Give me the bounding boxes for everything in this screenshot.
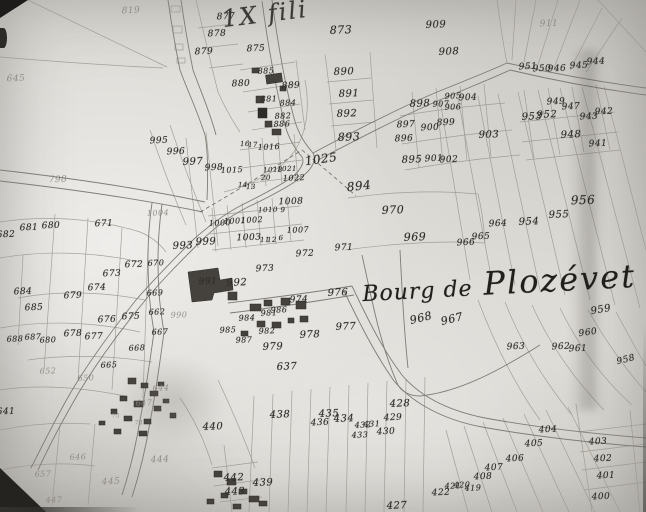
parcel-number: 941 bbox=[588, 139, 607, 150]
parcel-number: 1003 bbox=[236, 233, 261, 244]
parcel-number: 897 bbox=[396, 120, 415, 131]
parcel-number: 991 bbox=[198, 277, 217, 288]
parcel-number: 909 bbox=[426, 19, 447, 31]
parcel-number: 672 bbox=[124, 260, 143, 271]
parcel-number: 878 bbox=[207, 29, 226, 40]
parcel-number: 993 bbox=[173, 240, 194, 252]
parcel-number: 902 bbox=[439, 155, 458, 166]
parcel-number: 681 bbox=[19, 223, 38, 234]
parcel-number: 442 bbox=[224, 472, 245, 484]
parcel-number: 684 bbox=[13, 287, 32, 298]
parcel-number: 688 bbox=[6, 334, 23, 344]
parcel-number: 900 bbox=[420, 123, 439, 134]
parcel-number: 680 bbox=[41, 221, 60, 232]
parcel-number: 74 bbox=[135, 419, 144, 426]
parcel-number: 401 bbox=[596, 471, 615, 482]
parcel-number: 447 bbox=[45, 495, 62, 505]
parcel-number: 877 bbox=[216, 12, 235, 23]
parcel-number: 1010 bbox=[258, 206, 278, 215]
parcel-number: 404 bbox=[538, 425, 557, 436]
parcel-number: 873 bbox=[330, 23, 353, 37]
parcel-number: 440 bbox=[203, 421, 224, 433]
parcel-number: 999 bbox=[196, 236, 217, 248]
parcel-number: 1016 bbox=[258, 142, 281, 152]
parcel-number: 987 bbox=[235, 335, 252, 345]
parcel-number: 652 bbox=[39, 366, 56, 376]
parcel-number: 438 bbox=[270, 409, 291, 421]
scan-edge-mark-left bbox=[0, 28, 7, 48]
parcel-number: 646 bbox=[69, 452, 86, 462]
parcel-number: 995 bbox=[149, 136, 168, 147]
parcel-number: 1015 bbox=[221, 165, 244, 175]
parcel-number: 954 bbox=[519, 216, 540, 228]
parcel-number: 685 bbox=[24, 303, 43, 314]
cadastral-map: 1X fili Bourg de Plozévet 81987787387887… bbox=[0, 0, 646, 512]
parcel-number: 903 bbox=[479, 129, 500, 141]
parcel-number: 675 bbox=[121, 312, 140, 323]
parcel-number: 641 bbox=[0, 407, 16, 418]
parcel-number: 945 bbox=[569, 61, 588, 72]
parcel-number: 884 bbox=[279, 98, 296, 108]
parcel-number: 645 bbox=[6, 74, 25, 85]
parcel-number: 443 bbox=[225, 486, 246, 498]
parcel-number: 17 bbox=[248, 141, 258, 149]
parcel-number: 1022 bbox=[283, 173, 306, 183]
parcel-number: 9 bbox=[280, 206, 285, 214]
parcel-number: 427 bbox=[387, 500, 408, 512]
parcel-number: 896 bbox=[394, 134, 413, 145]
parcel-number: 886 bbox=[273, 119, 290, 129]
parcel-number: 895 bbox=[402, 154, 423, 166]
parcel-number: 444 bbox=[150, 455, 169, 466]
parcel-number: 650 bbox=[77, 373, 94, 383]
parcel-number: 680 bbox=[39, 335, 56, 345]
parcel-number: 1007 bbox=[287, 225, 310, 235]
parcel-number: 961 bbox=[568, 344, 587, 355]
parcel-number: 433 bbox=[351, 430, 368, 440]
place-name-main: Plozévet bbox=[482, 257, 636, 303]
parcel-number: 893 bbox=[338, 130, 361, 144]
parcel-number: 406 bbox=[505, 454, 524, 465]
parcel-number: 657 bbox=[34, 469, 51, 479]
parcel-number: 979 bbox=[263, 341, 284, 353]
parcel-number: 20 bbox=[261, 174, 271, 182]
parcel-number: 978 bbox=[300, 329, 321, 341]
parcel-number: 956 bbox=[571, 193, 596, 208]
parcel-number: 894 bbox=[346, 178, 372, 194]
parcel-number: 997 bbox=[183, 156, 204, 168]
parcel-number: 670 bbox=[147, 258, 164, 268]
parcel-number: 881 bbox=[260, 94, 277, 104]
parcel-number: 676 bbox=[97, 315, 116, 326]
parcel-number: 662 bbox=[148, 307, 165, 317]
parcel-number: 819 bbox=[121, 6, 140, 17]
parcel-number: 971 bbox=[334, 243, 353, 254]
parcel-number: 889 bbox=[281, 81, 300, 92]
parcel-number: 428 bbox=[390, 398, 411, 410]
parcel-number: 678 bbox=[63, 329, 82, 340]
parcel-number: 405 bbox=[524, 439, 543, 450]
parcel-number: 892 bbox=[337, 108, 358, 120]
parcel-number: 1021 bbox=[277, 165, 297, 174]
parcel-number: 942 bbox=[594, 107, 613, 118]
parcel-number: 674 bbox=[87, 283, 106, 294]
parcel-number: 972 bbox=[295, 249, 314, 260]
parcel-number: 13 bbox=[246, 183, 256, 191]
parcel-number: 891 bbox=[339, 88, 360, 100]
parcel-number: 673 bbox=[102, 269, 121, 280]
parcel-number: 885 bbox=[257, 66, 274, 76]
parcel-number: 439 bbox=[253, 477, 274, 489]
parcel-number: 682 bbox=[0, 230, 16, 241]
parcel-number: 875 bbox=[246, 44, 265, 55]
place-name-prefix: Bourg de bbox=[362, 276, 473, 307]
parcel-number: 12 bbox=[267, 236, 277, 244]
parcel-number: 430 bbox=[376, 427, 395, 438]
parcel-number: 952 bbox=[537, 109, 558, 121]
parcel-number: 402 bbox=[593, 454, 612, 465]
parcel-number: 955 bbox=[549, 209, 570, 221]
parcel-number: 984 bbox=[238, 313, 255, 323]
parcel-number: 667 bbox=[151, 327, 168, 337]
parcel-number: 996 bbox=[166, 147, 185, 158]
parcel-number: 407 bbox=[484, 463, 503, 474]
parcel-number: 669 bbox=[146, 288, 163, 298]
parcel-number: 908 bbox=[439, 46, 460, 58]
parcel-number: 911 bbox=[539, 19, 558, 30]
parcel-number: 677 bbox=[84, 332, 103, 343]
parcel-number: 798 bbox=[48, 175, 67, 186]
parcel-number: 986 bbox=[270, 305, 287, 315]
parcel-number: 964 bbox=[488, 219, 507, 230]
parcel-number: 976 bbox=[328, 287, 349, 299]
parcel-number: 668 bbox=[128, 343, 145, 353]
parcel-number: 644 bbox=[152, 383, 169, 393]
parcel-number: 879 bbox=[194, 47, 213, 58]
parcel-number: 679 bbox=[63, 291, 82, 302]
scan-edge-shadow-bottom bbox=[0, 507, 140, 512]
parcel-number: 647 bbox=[135, 398, 152, 408]
parcel-number: 408 bbox=[473, 472, 492, 483]
parcel-number: 890 bbox=[334, 66, 355, 78]
parcel-number: 429 bbox=[383, 413, 402, 424]
parcel-number: 75 bbox=[112, 412, 121, 419]
parcel-number: 880 bbox=[231, 79, 250, 90]
parcel-number: 948 bbox=[561, 129, 582, 141]
parcel-number: 1004 bbox=[147, 208, 170, 218]
parcel-number: 992 bbox=[227, 277, 248, 289]
parcel-number: 947 bbox=[561, 102, 580, 113]
parcel-number: 990 bbox=[170, 310, 187, 320]
parcel-number: 1002 bbox=[241, 215, 264, 225]
parcel-number: 419 bbox=[464, 483, 481, 493]
parcel-number: 965 bbox=[471, 232, 490, 243]
parcel-number: 963 bbox=[506, 342, 525, 353]
parcel-number: 977 bbox=[336, 321, 357, 333]
parcel-number: 974 bbox=[289, 295, 308, 306]
parcel-number: 637 bbox=[277, 361, 298, 373]
map-line-network bbox=[0, 0, 646, 512]
parcel-number: 973 bbox=[255, 264, 274, 275]
parcel-number: 445 bbox=[101, 477, 120, 488]
parcel-number: 671 bbox=[94, 219, 113, 230]
parcel-number: 403 bbox=[588, 437, 607, 448]
parcel-number: 434 bbox=[334, 413, 355, 425]
parcel-number: 665 bbox=[100, 360, 117, 370]
parcel-number: 970 bbox=[382, 203, 405, 217]
parcel-number: 944 bbox=[586, 57, 605, 68]
parcel-number: 906 bbox=[444, 102, 461, 112]
parcel-number: 946 bbox=[547, 64, 566, 75]
parcel-number: 6 bbox=[278, 234, 283, 242]
parcel-number: 969 bbox=[404, 230, 427, 244]
parcel-number: 898 bbox=[410, 98, 431, 110]
parcel-number: 982 bbox=[258, 326, 275, 336]
parcel-number: 400 bbox=[591, 492, 610, 503]
parcel-number: 985 bbox=[219, 325, 236, 335]
parcel-boundaries bbox=[0, 0, 646, 512]
